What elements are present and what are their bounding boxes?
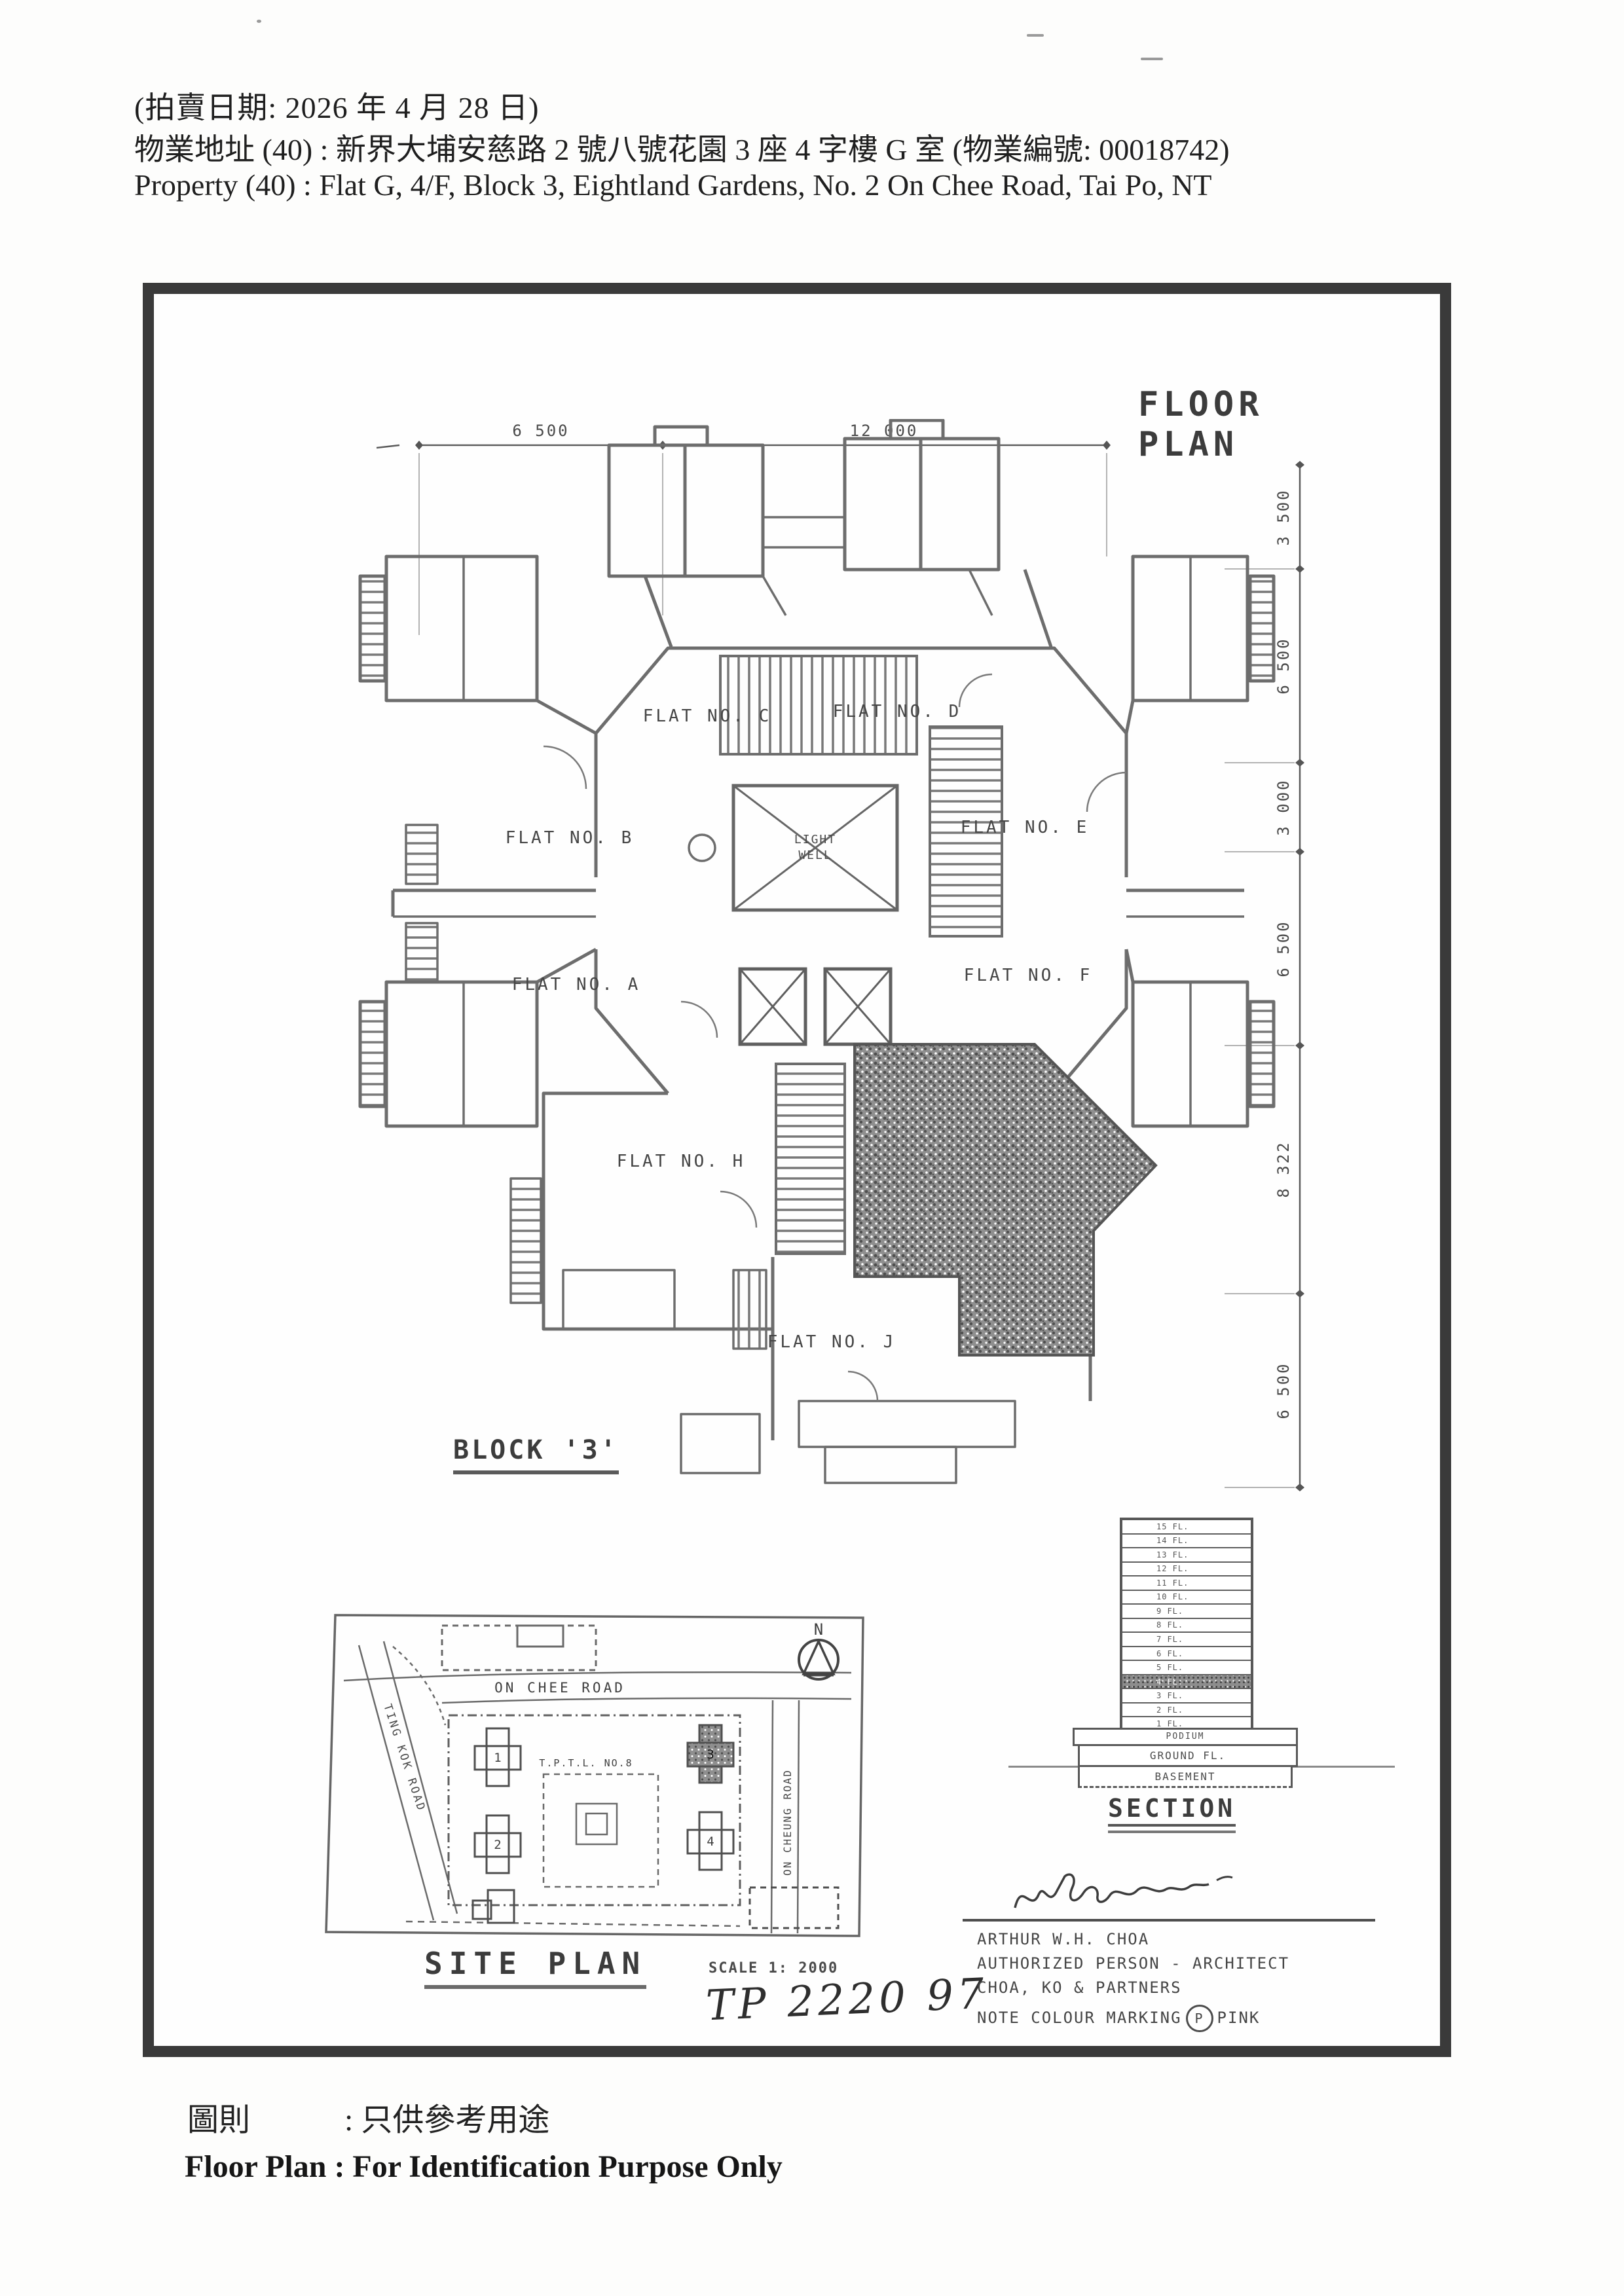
section-floor-row: 8 FL. (1122, 1619, 1251, 1633)
dim-top-left: 6 500 (512, 422, 569, 440)
section-floor-row: 5 FL. (1122, 1661, 1251, 1675)
site-plan-title: SITE PLAN (424, 1946, 646, 1989)
signature-rule (963, 1919, 1375, 1922)
top-dimension-line (377, 441, 1111, 635)
scan-speck (1141, 58, 1163, 60)
scan-speck (1027, 34, 1044, 37)
section-floor-label: 2 FL. (1122, 1705, 1183, 1715)
flat-a-label: FLAT NO. A (512, 975, 641, 994)
section-floor-row: 3 FL. (1122, 1689, 1251, 1704)
flat-c-label: FLAT NO. C (643, 706, 772, 726)
on-chee-road-label: ON CHEE ROAD (494, 1680, 625, 1696)
site-plan-scale: SCALE 1: 2000 (709, 1960, 838, 1977)
section-floor-row: 2 FL. (1122, 1704, 1251, 1718)
property-address-en: Property (40) : Flat G, 4/F, Block 3, Ei… (134, 168, 1212, 202)
north-label: N (814, 1620, 823, 1639)
dim-right-6: 6 500 (1274, 1362, 1293, 1419)
section-title: SECTION (1108, 1794, 1236, 1827)
section-floor-label: 3 FL. (1122, 1691, 1183, 1700)
section-floor-label: 7 FL. (1122, 1635, 1183, 1644)
flat-b-label: FLAT NO. B (506, 828, 635, 848)
adjacent-lot-dashed (442, 1626, 596, 1670)
section-floor-label: 10 FL. (1122, 1592, 1189, 1601)
subject-flat-g-highlight (855, 1044, 1156, 1355)
section-floor-label: 12 FL. (1122, 1564, 1189, 1573)
dim-right-2: 6 500 (1274, 637, 1293, 694)
auction-date-line: (拍賣日期: 2026 年 4 月 28 日) (134, 84, 539, 127)
section-tower: 15 FL. 14 FL. 13 FL. 12 FL. 11 FL. 10 FL… (1120, 1518, 1253, 1733)
footer-zh-colon: : (344, 2103, 353, 2138)
light-well (733, 786, 897, 910)
footer-zh-text: : 只供參考用途 (344, 2094, 549, 2140)
colour-marking-note: NOTE COLOUR MARKINGPPINK (977, 2005, 1260, 2032)
site-plan-drawing: 1 2 3 4 ON CHEE ROAD TING KOK ROAD ON CH… (321, 1607, 874, 1944)
dim-right-1: 3 500 (1274, 488, 1293, 545)
on-cheung-road-label: ON CHEUNG ROAD (781, 1769, 794, 1876)
block-3-label: BLOCK '3' (453, 1435, 619, 1474)
section-floor-label: 5 FL. (1122, 1663, 1183, 1672)
flat-f-label: FLAT NO. F (964, 966, 1093, 985)
footer-zh-label: 圖則 (187, 2094, 250, 2140)
section-floor-label: 11 FL. (1122, 1578, 1189, 1588)
dim-right-3: 3 000 (1274, 778, 1293, 835)
block-number-2: 2 (494, 1838, 501, 1852)
architect-signature (1008, 1867, 1244, 1923)
podium-label: PODIUM (1166, 1732, 1205, 1741)
dim-right-5: 8 322 (1274, 1140, 1293, 1197)
section-floor-row: 6 FL. (1122, 1647, 1251, 1662)
ground-floor-label: GROUND FL. (1150, 1749, 1226, 1762)
section-podium: PODIUM (1073, 1728, 1298, 1746)
section-ground-floor: GROUND FL. (1078, 1744, 1298, 1767)
dim-right-4: 6 500 (1274, 920, 1293, 977)
section-floor-row: 13 FL. (1122, 1548, 1251, 1563)
section-floor-row: 10 FL. (1122, 1591, 1251, 1605)
property-address-zh: 物業地址 (40) : 新界大埔安慈路 2 號八號花園 3 座 4 字樓 G 室… (134, 126, 1230, 169)
section-floor-label: 8 FL. (1122, 1620, 1183, 1630)
flat-e-label: FLAT NO. E (961, 818, 1090, 837)
footer-en-text: Floor Plan : For Identification Purpose … (185, 2149, 783, 2185)
lift-shafts (740, 969, 891, 1044)
building-outline (360, 420, 1274, 1483)
section-floor-label: 13 FL. (1122, 1550, 1189, 1559)
block-number-4: 4 (707, 1834, 714, 1849)
section-floor-label: 4 FL. (1122, 1677, 1183, 1686)
architect-name: ARTHUR W.H. CHOA (977, 1930, 1149, 1948)
section-floor-row: 11 FL. (1122, 1576, 1251, 1591)
section-floor-label: 15 FL. (1122, 1522, 1189, 1531)
flat-j-label: FLAT NO. J (767, 1332, 896, 1352)
note-suffix: PINK (1217, 2009, 1261, 2027)
section-floor-row: 15 FL. (1122, 1520, 1251, 1535)
section-floor-row: 9 FL. (1122, 1605, 1251, 1619)
floor-plan-drawing: 6 500 12 000 3 500 6 500 3 000 6 500 8 3… (314, 419, 1310, 1519)
section-floor-row: 4 FL. (1122, 1675, 1251, 1690)
north-arrow-icon (799, 1640, 838, 1679)
lot-number-label: T.P.T.L. NO.8 (539, 1757, 633, 1769)
section-floor-label: 6 FL. (1122, 1649, 1183, 1658)
architect-role: AUTHORIZED PERSON - ARCHITECT (977, 1954, 1289, 1973)
section-floor-label: 14 FL. (1122, 1536, 1189, 1545)
block-number-1: 1 (494, 1751, 501, 1765)
flat-h-label: FLAT NO. H (617, 1152, 746, 1171)
section-basement: BASEMENT (1078, 1765, 1293, 1788)
light-well-label-2: WELL (798, 848, 832, 862)
central-court (544, 1774, 658, 1887)
wc-fixture (689, 835, 715, 861)
scan-speck (257, 20, 261, 23)
section-floor-label: 9 FL. (1122, 1607, 1183, 1616)
section-floor-row: 7 FL. (1122, 1633, 1251, 1647)
pink-marking-icon: P (1186, 2005, 1213, 2032)
basement-label: BASEMENT (1154, 1770, 1215, 1783)
flat-d-label: FLAT NO. D (833, 702, 962, 721)
block-number-3: 3 (707, 1747, 714, 1762)
footer-zh-purpose: 只供參考用途 (361, 2103, 549, 2138)
section-diagram: 15 FL. 14 FL. 13 FL. 12 FL. 11 FL. 10 FL… (1067, 1512, 1349, 1827)
section-floor-row: 12 FL. (1122, 1563, 1251, 1577)
note-prefix: NOTE COLOUR MARKING (977, 2009, 1182, 2027)
light-well-label-1: LIGHT (794, 833, 836, 847)
architect-firm: CHOA, KO & PARTNERS (977, 1978, 1182, 1997)
section-floor-row: 14 FL. (1122, 1535, 1251, 1549)
